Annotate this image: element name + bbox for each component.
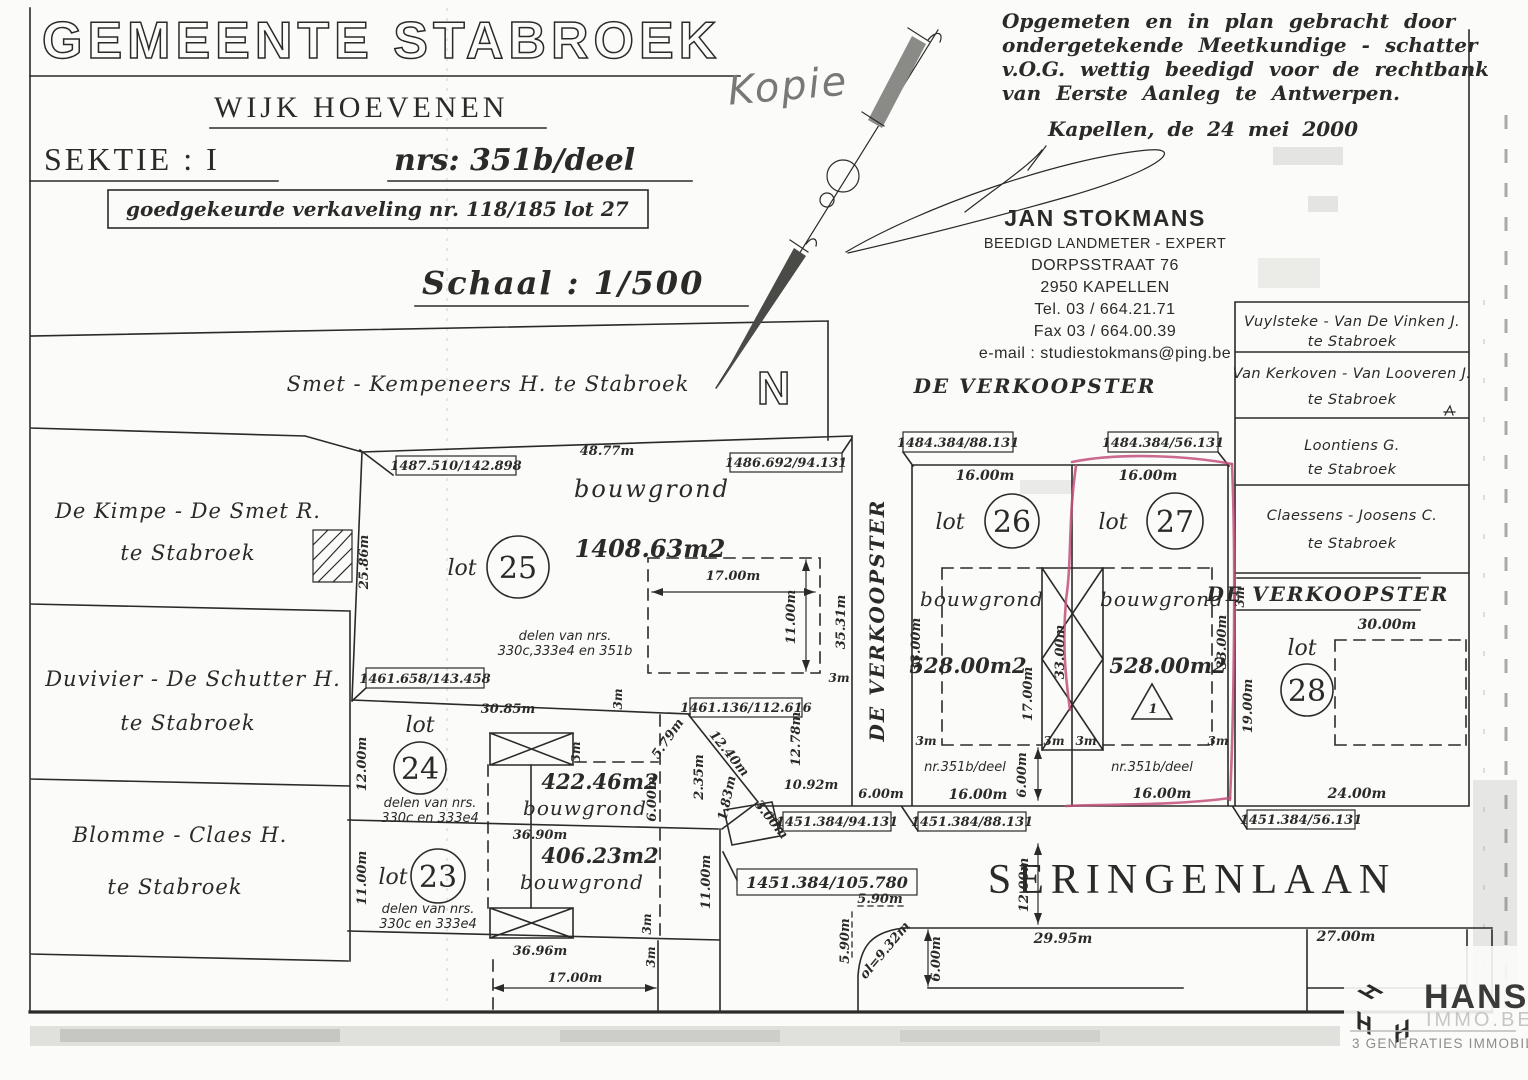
dim-17-00-lot25: 17.00m bbox=[706, 569, 760, 584]
needle-blade-upper bbox=[868, 36, 926, 128]
municipality-title: GEMEENTE STABROEK bbox=[42, 12, 721, 70]
neighbour-east-3-place: te Stabroek bbox=[1308, 462, 1397, 478]
dim-3m-26l: 3m bbox=[915, 734, 936, 748]
lot24-area: 422.46m2 bbox=[541, 769, 658, 794]
scale-label: Schaal : 1/500 bbox=[422, 264, 704, 302]
dim-35-31: 35.31m bbox=[834, 595, 849, 649]
dim-2-35: 2.35m bbox=[692, 754, 707, 800]
surveyor-street: DORPSSTRAAT 76 bbox=[1031, 257, 1179, 274]
neighbour-west-3-place: te Stabroek bbox=[107, 875, 242, 899]
lot28-number: 28 bbox=[1288, 674, 1326, 709]
dim-5-90-v: 5.90m bbox=[838, 918, 853, 963]
dim-3m-bottom23: 3m bbox=[644, 946, 658, 967]
lot27-parcel: nr.351b/deel bbox=[1111, 760, 1193, 775]
seller-label-center: DE VERKOOPSTER bbox=[913, 374, 1157, 398]
dim-16-00-lot26-top: 16.00m bbox=[956, 468, 1015, 484]
coord-box-1-text: 1487.510/142.898 bbox=[390, 459, 521, 474]
lot25-parcels-1: delen van nrs. bbox=[519, 629, 612, 644]
dim-36-90: 36.90m bbox=[513, 828, 567, 843]
lot24-parcels-2: 330c en 333e4 bbox=[381, 811, 479, 826]
dim-1-83: 1.83m bbox=[716, 774, 740, 822]
coord-box-2-text: 1486.692/94.131 bbox=[725, 456, 847, 471]
title-block: GEMEENTE STABROEK Kopie WIJK HOEVENEN SE… bbox=[30, 12, 850, 306]
dim-24-00: 24.00m bbox=[1327, 786, 1387, 802]
coord-box-9-text: 1451.384/105.780 bbox=[746, 873, 908, 892]
needle-circle-large bbox=[827, 160, 859, 192]
lot25-word: lot bbox=[447, 556, 476, 581]
dim-3m-garage24: 3m bbox=[569, 741, 583, 762]
lot23-parcels-1: delen van nrs. bbox=[382, 902, 475, 917]
surveyor-email: e-mail : studiestokmans@ping.be bbox=[979, 345, 1231, 362]
neighbour-east-3-name: Loontiens G. bbox=[1304, 438, 1400, 454]
section-label: SEKTIE : I bbox=[44, 141, 220, 177]
dim-3m-27l: 3m bbox=[1075, 734, 1096, 748]
dim-17-00-bottom: 17.00m bbox=[548, 971, 602, 986]
surveyor-block: Opgemeten en in plan gebracht door onder… bbox=[979, 9, 1489, 362]
scan-band-bottom-4 bbox=[900, 1030, 1100, 1042]
statement-line-1: Opgemeten en in plan gebracht door bbox=[1002, 9, 1457, 33]
dim-5-90-h: 5.90m bbox=[857, 892, 902, 907]
parcel-numbers-label: nrs: 351b/deel bbox=[394, 143, 635, 178]
surveyor-tel: Tel. 03 / 664.21.71 bbox=[1034, 301, 1175, 318]
coord-box-8-text: 1451.384/88.131 bbox=[911, 815, 1033, 830]
highlight-right bbox=[1230, 464, 1234, 800]
lot25-parcels-2: 330c,333e4 en 351b bbox=[498, 644, 633, 659]
scan-smudge bbox=[1308, 196, 1338, 212]
signature-stroke bbox=[965, 146, 1046, 212]
highlight-top bbox=[1072, 456, 1232, 464]
dim-12-78: 12.78m bbox=[789, 712, 804, 766]
dim-10-92: 10.92m bbox=[784, 778, 838, 793]
coord-box-10-text: 1451.384/56.131 bbox=[1240, 813, 1362, 828]
hans-immo-logo: H H H HANS IMMO.BE 3 GENERATIES IMMOBILI… bbox=[1344, 946, 1528, 1058]
lot27-area: 528.00m2 bbox=[1109, 653, 1226, 678]
lot23-parcels-2: 330c en 333e4 bbox=[379, 917, 477, 932]
dim-11-00-lot23: 11.00m bbox=[355, 851, 370, 905]
scan-band-bottom-3 bbox=[560, 1030, 780, 1042]
dim-36-96: 36.96m bbox=[513, 944, 567, 959]
dim-16-00-lot27-bot: 16.00m bbox=[1133, 786, 1192, 802]
dim-48-77: 48.77m bbox=[580, 444, 634, 459]
lot26-area: 528.00m2 bbox=[909, 653, 1026, 678]
dim-17-00-lot26: 17.00m bbox=[1021, 667, 1036, 721]
dim-3m-top24: 3m bbox=[611, 688, 625, 709]
dim-30-85: 30.85m bbox=[481, 702, 535, 717]
north-letter: N bbox=[757, 362, 790, 414]
dim-33-00-lot26: 33.00m bbox=[909, 618, 924, 672]
lot24-number: 24 bbox=[401, 752, 439, 787]
lot27-triangle-number: 1 bbox=[1148, 702, 1157, 717]
lot27-word: lot bbox=[1098, 510, 1127, 535]
lot28-word: lot bbox=[1287, 636, 1316, 661]
coord-box-3-text: 1461.658/143.458 bbox=[359, 672, 490, 687]
statement-line-2: ondergetekende Meetkundige - schatter bbox=[1002, 33, 1479, 57]
coord-box-6-text: 1484.384/56.131 bbox=[1102, 436, 1224, 451]
lot25-area: 1408.63m2 bbox=[575, 534, 726, 563]
neighbour-west-2-name: Duvivier - De Schutter H. bbox=[44, 667, 341, 691]
surveyor-name: JAN STOKMANS bbox=[1004, 205, 1206, 231]
lot26-word: lot bbox=[935, 510, 964, 535]
coord-box-5-text: 1484.384/88.131 bbox=[897, 436, 1019, 451]
scan-smudge bbox=[1273, 147, 1343, 165]
surveyor-role: BEEDIGD LANDMETER - EXPERT bbox=[984, 236, 1226, 252]
lot27-number: 27 bbox=[1156, 505, 1194, 540]
dim-6-00-curve: 6.00m bbox=[929, 936, 944, 981]
seller-labels: DE VERKOOPSTER DE VERKOOPSTER DE VERKOOP… bbox=[865, 374, 1449, 742]
dim-3m-lot25: 3m bbox=[828, 671, 849, 685]
neighbour-east-2-name: Van Kerkoven - Van Looveren J. bbox=[1233, 366, 1472, 382]
surveyor-city: 2950 KAPELLEN bbox=[1040, 279, 1169, 296]
copy-stamp: Kopie bbox=[726, 58, 850, 114]
neighbour-east-1-place: te Stabroek bbox=[1308, 334, 1397, 350]
dim-33-00-lot27: 33.00m bbox=[1215, 615, 1230, 669]
caret-mark bbox=[1444, 406, 1455, 415]
hatch-marker bbox=[313, 530, 352, 582]
dim-11-00-road: 11.00m bbox=[699, 855, 714, 909]
dim-3m-27r: 3m bbox=[1207, 734, 1228, 748]
lot25-number: 25 bbox=[499, 551, 537, 586]
lot23-area: 406.23m2 bbox=[541, 843, 658, 868]
dim-3m-east: 3m bbox=[1233, 586, 1247, 607]
neighbour-west-2-place: te Stabroek bbox=[120, 711, 255, 735]
dim-12-00-lot24: 12.00m bbox=[355, 737, 370, 791]
dim-30-00: 30.00m bbox=[1358, 617, 1417, 633]
seller-label-strip: DE VERKOOPSTER bbox=[865, 499, 889, 743]
dim-33-00-middle: 33.00m bbox=[1053, 625, 1068, 679]
lot26-use: bouwgrond bbox=[920, 587, 1044, 611]
district-title: WIJK HOEVENEN bbox=[214, 91, 508, 124]
lot27-use: bouwgrond bbox=[1100, 587, 1224, 611]
surveyor-fax: Fax 03 / 664.00.39 bbox=[1034, 323, 1176, 340]
dim-27-00: 27.00m bbox=[1316, 929, 1376, 945]
logo-tagline: 3 GENERATIES IMMOBILIËN bbox=[1352, 1036, 1528, 1051]
dim-3m-26r: 3m bbox=[1043, 734, 1064, 748]
lot25-use: bouwgrond bbox=[574, 475, 730, 503]
dim-25-86: 25.86m bbox=[357, 535, 372, 590]
dim-19-00: 19.00m bbox=[1241, 679, 1256, 733]
dim-11-00-lot25: 11.00m bbox=[784, 590, 799, 644]
lot26-number: 26 bbox=[993, 505, 1031, 540]
neighbour-west-3-name: Blomme - Claes H. bbox=[72, 823, 288, 847]
garage-box-lot23 bbox=[490, 908, 573, 938]
coord-box-7-text: 1451.384/94.131 bbox=[776, 815, 898, 830]
neighbour-east-4-place: te Stabroek bbox=[1308, 536, 1397, 552]
lot23-number: 23 bbox=[419, 860, 457, 895]
plan-drawing: N GEMEENTE STABROEK Kopie WIJK HOEVENEN … bbox=[0, 0, 1528, 1080]
neighbour-west-1-name: De Kimpe - De Smet R. bbox=[54, 499, 321, 523]
scan-smudge bbox=[1020, 480, 1072, 494]
neighbour-east-2-place: te Stabroek bbox=[1308, 392, 1397, 408]
lot23-use: bouwgrond bbox=[520, 870, 644, 894]
approval-text: goedgekeurde verkaveling nr. 118/185 lot… bbox=[126, 197, 629, 221]
scan-smudge bbox=[1258, 258, 1320, 288]
logo-domain: IMMO.BE bbox=[1426, 1009, 1528, 1031]
lot24-parcels-1: delen van nrs. bbox=[384, 796, 477, 811]
lot24-use: bouwgrond bbox=[523, 796, 647, 820]
date-line: Kapellen, de 24 mei 2000 bbox=[1047, 117, 1358, 141]
lot23-word: lot bbox=[378, 865, 407, 890]
dim-29-95: 29.95m bbox=[1033, 931, 1093, 947]
garage-box-lot24 bbox=[490, 733, 573, 765]
lot24-word: lot bbox=[405, 713, 434, 738]
cadastral-plan-page: N GEMEENTE STABROEK Kopie WIJK HOEVENEN … bbox=[0, 0, 1528, 1080]
dim-6-00-lot26: 6.00m bbox=[1015, 752, 1030, 797]
neighbour-east-4-name: Claessens - Joosens C. bbox=[1267, 508, 1438, 524]
dim-16-00-lot27-top: 16.00m bbox=[1119, 468, 1178, 484]
lot26-parcel: nr.351b/deel bbox=[924, 760, 1006, 775]
dim-3m-garage23: 3m bbox=[640, 913, 654, 934]
dim-arc-9-32: ol=9.32m bbox=[857, 919, 913, 982]
dim-16-00-lot26-bot: 16.00m bbox=[949, 787, 1008, 803]
street-name: SERINGENLAAN bbox=[988, 857, 1396, 903]
dim-6-00-strip: 6.00m bbox=[858, 787, 903, 802]
dim-12-40: 12.40m bbox=[706, 728, 752, 780]
dim-6-00-lot24: 6.00m bbox=[645, 776, 660, 821]
neighbour-north: Smet - Kempeneers H. te Stabroek bbox=[287, 372, 690, 396]
statement-line-3: v.O.G. wettig beedigd voor de rechtbank bbox=[1002, 57, 1489, 81]
dim-5-79: 5.79m bbox=[649, 716, 687, 762]
scan-band-bottom-2 bbox=[60, 1029, 340, 1042]
neighbour-east-1-name: Vuylsteke - Van De Vinken J. bbox=[1244, 314, 1460, 330]
neighbour-west-1-place: te Stabroek bbox=[120, 541, 255, 565]
statement-line-4: van Eerste Aanleg te Antwerpen. bbox=[1002, 81, 1400, 105]
